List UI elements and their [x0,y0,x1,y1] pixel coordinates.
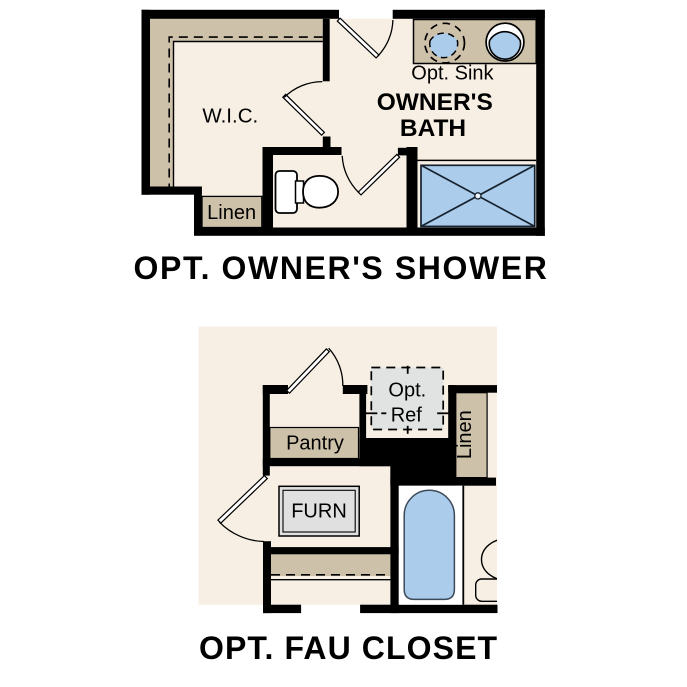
svg-text:Linen: Linen [454,410,476,459]
svg-text:FURN: FURN [291,501,347,523]
svg-text:Opt.: Opt. [388,379,426,401]
svg-text:W.I.C.: W.I.C. [202,105,258,128]
svg-text:BATH: BATH [400,115,466,142]
svg-text:Pantry: Pantry [286,433,344,455]
svg-text:Opt. Sink: Opt. Sink [411,63,494,85]
svg-text:OWNER'S: OWNER'S [377,89,493,116]
svg-text:OPT. OWNER'S SHOWER: OPT. OWNER'S SHOWER [134,250,549,286]
svg-text:Linen: Linen [207,202,256,224]
svg-text:Ref: Ref [391,404,423,426]
svg-text:OPT. FAU CLOSET: OPT. FAU CLOSET [199,630,498,666]
